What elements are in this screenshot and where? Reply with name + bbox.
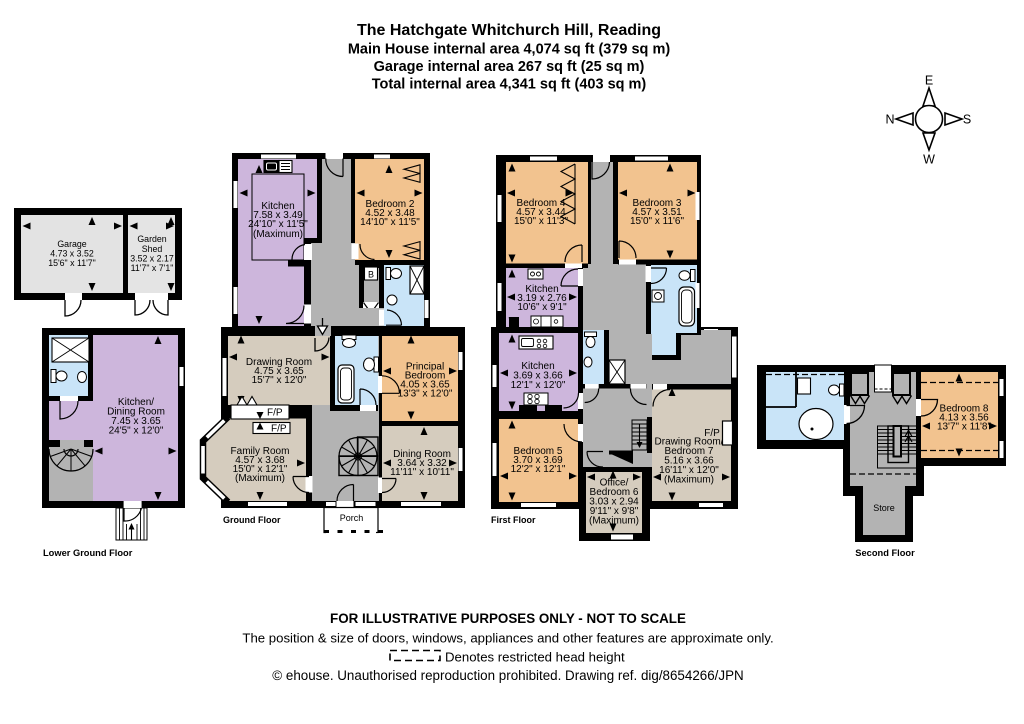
svg-text:Shed: Shed [142,244,163,254]
svg-text:N: N [885,113,894,127]
svg-text:S: S [963,113,971,127]
svg-text:4.73 x 3.52: 4.73 x 3.52 [50,249,94,259]
svg-text:Garage: Garage [57,239,86,249]
svg-text:Lower Ground Floor: Lower Ground Floor [43,548,133,558]
svg-text:10'6" x 9'1": 10'6" x 9'1" [517,302,567,313]
svg-text:(Maximum): (Maximum) [664,475,714,486]
svg-text:Garden: Garden [137,234,166,244]
svg-text:13'7" x 11'8": 13'7" x 11'8" [937,422,992,433]
svg-text:15'0" x 11'6": 15'0" x 11'6" [630,216,685,227]
svg-text:15'6" x 11'7": 15'6" x 11'7" [48,258,96,268]
svg-text:11'11" x 10'11": 11'11" x 10'11" [390,467,454,478]
svg-text:24'5" x 12'0": 24'5" x 12'0" [109,426,164,437]
svg-text:Second Floor: Second Floor [855,548,915,558]
svg-text:The position & size of doors,: The position & size of doors, windows, a… [242,631,773,646]
svg-text:First Floor: First Floor [491,515,536,525]
svg-text:15'7" x 12'0": 15'7" x 12'0" [252,375,307,386]
svg-text:W: W [923,153,935,167]
svg-text:Ground Floor: Ground Floor [223,515,281,525]
svg-text:E: E [925,74,933,88]
svg-text:(Maximum): (Maximum) [235,473,285,484]
svg-text:12'2" x 12'1": 12'2" x 12'1" [511,464,566,475]
svg-text:© ehouse. Unauthorised reprodu: © ehouse. Unauthorised reproduction proh… [272,668,743,683]
svg-text:12'1" x 12'0": 12'1" x 12'0" [511,380,566,391]
svg-text:Main House internal area 4,074: Main House internal area 4,074 sq ft (37… [348,42,671,58]
svg-text:Porch: Porch [340,513,364,523]
svg-text:3.52 x 2.17: 3.52 x 2.17 [130,254,174,264]
svg-text:B: B [368,270,374,280]
svg-text:Store: Store [873,503,895,513]
svg-text:F/P: F/P [267,408,283,419]
svg-text:14'10" x 11'5": 14'10" x 11'5" [360,217,420,228]
svg-text:Garage internal area 267 sq ft: Garage internal area 267 sq ft (25 sq m) [374,59,645,75]
svg-text:Total internal area 4,341 sq f: Total internal area 4,341 sq ft (403 sq … [372,77,647,93]
svg-text:13'3" x 12'0": 13'3" x 12'0" [398,389,453,400]
svg-text:Denotes restricted head height: Denotes restricted head height [445,650,625,665]
svg-text:FOR ILLUSTRATIVE PURPOSES ONLY: FOR ILLUSTRATIVE PURPOSES ONLY - NOT TO … [330,611,686,626]
svg-text:15'0" x 11'3": 15'0" x 11'3" [514,216,569,227]
svg-text:(Maximum): (Maximum) [253,229,303,240]
svg-text:11'7" x 7'1": 11'7" x 7'1" [131,263,174,273]
svg-text:The Hatchgate Whitchurch Hill,: The Hatchgate Whitchurch Hill, Reading [357,22,661,39]
svg-text:F/P: F/P [271,424,287,435]
